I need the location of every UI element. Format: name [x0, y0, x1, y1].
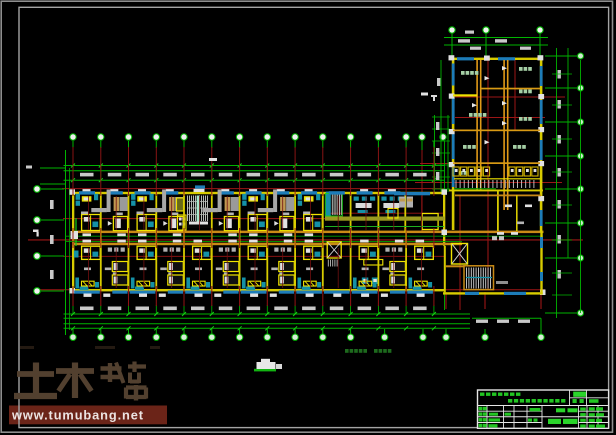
svg-text:www.tumubang.net: www.tumubang.net	[11, 407, 144, 422]
